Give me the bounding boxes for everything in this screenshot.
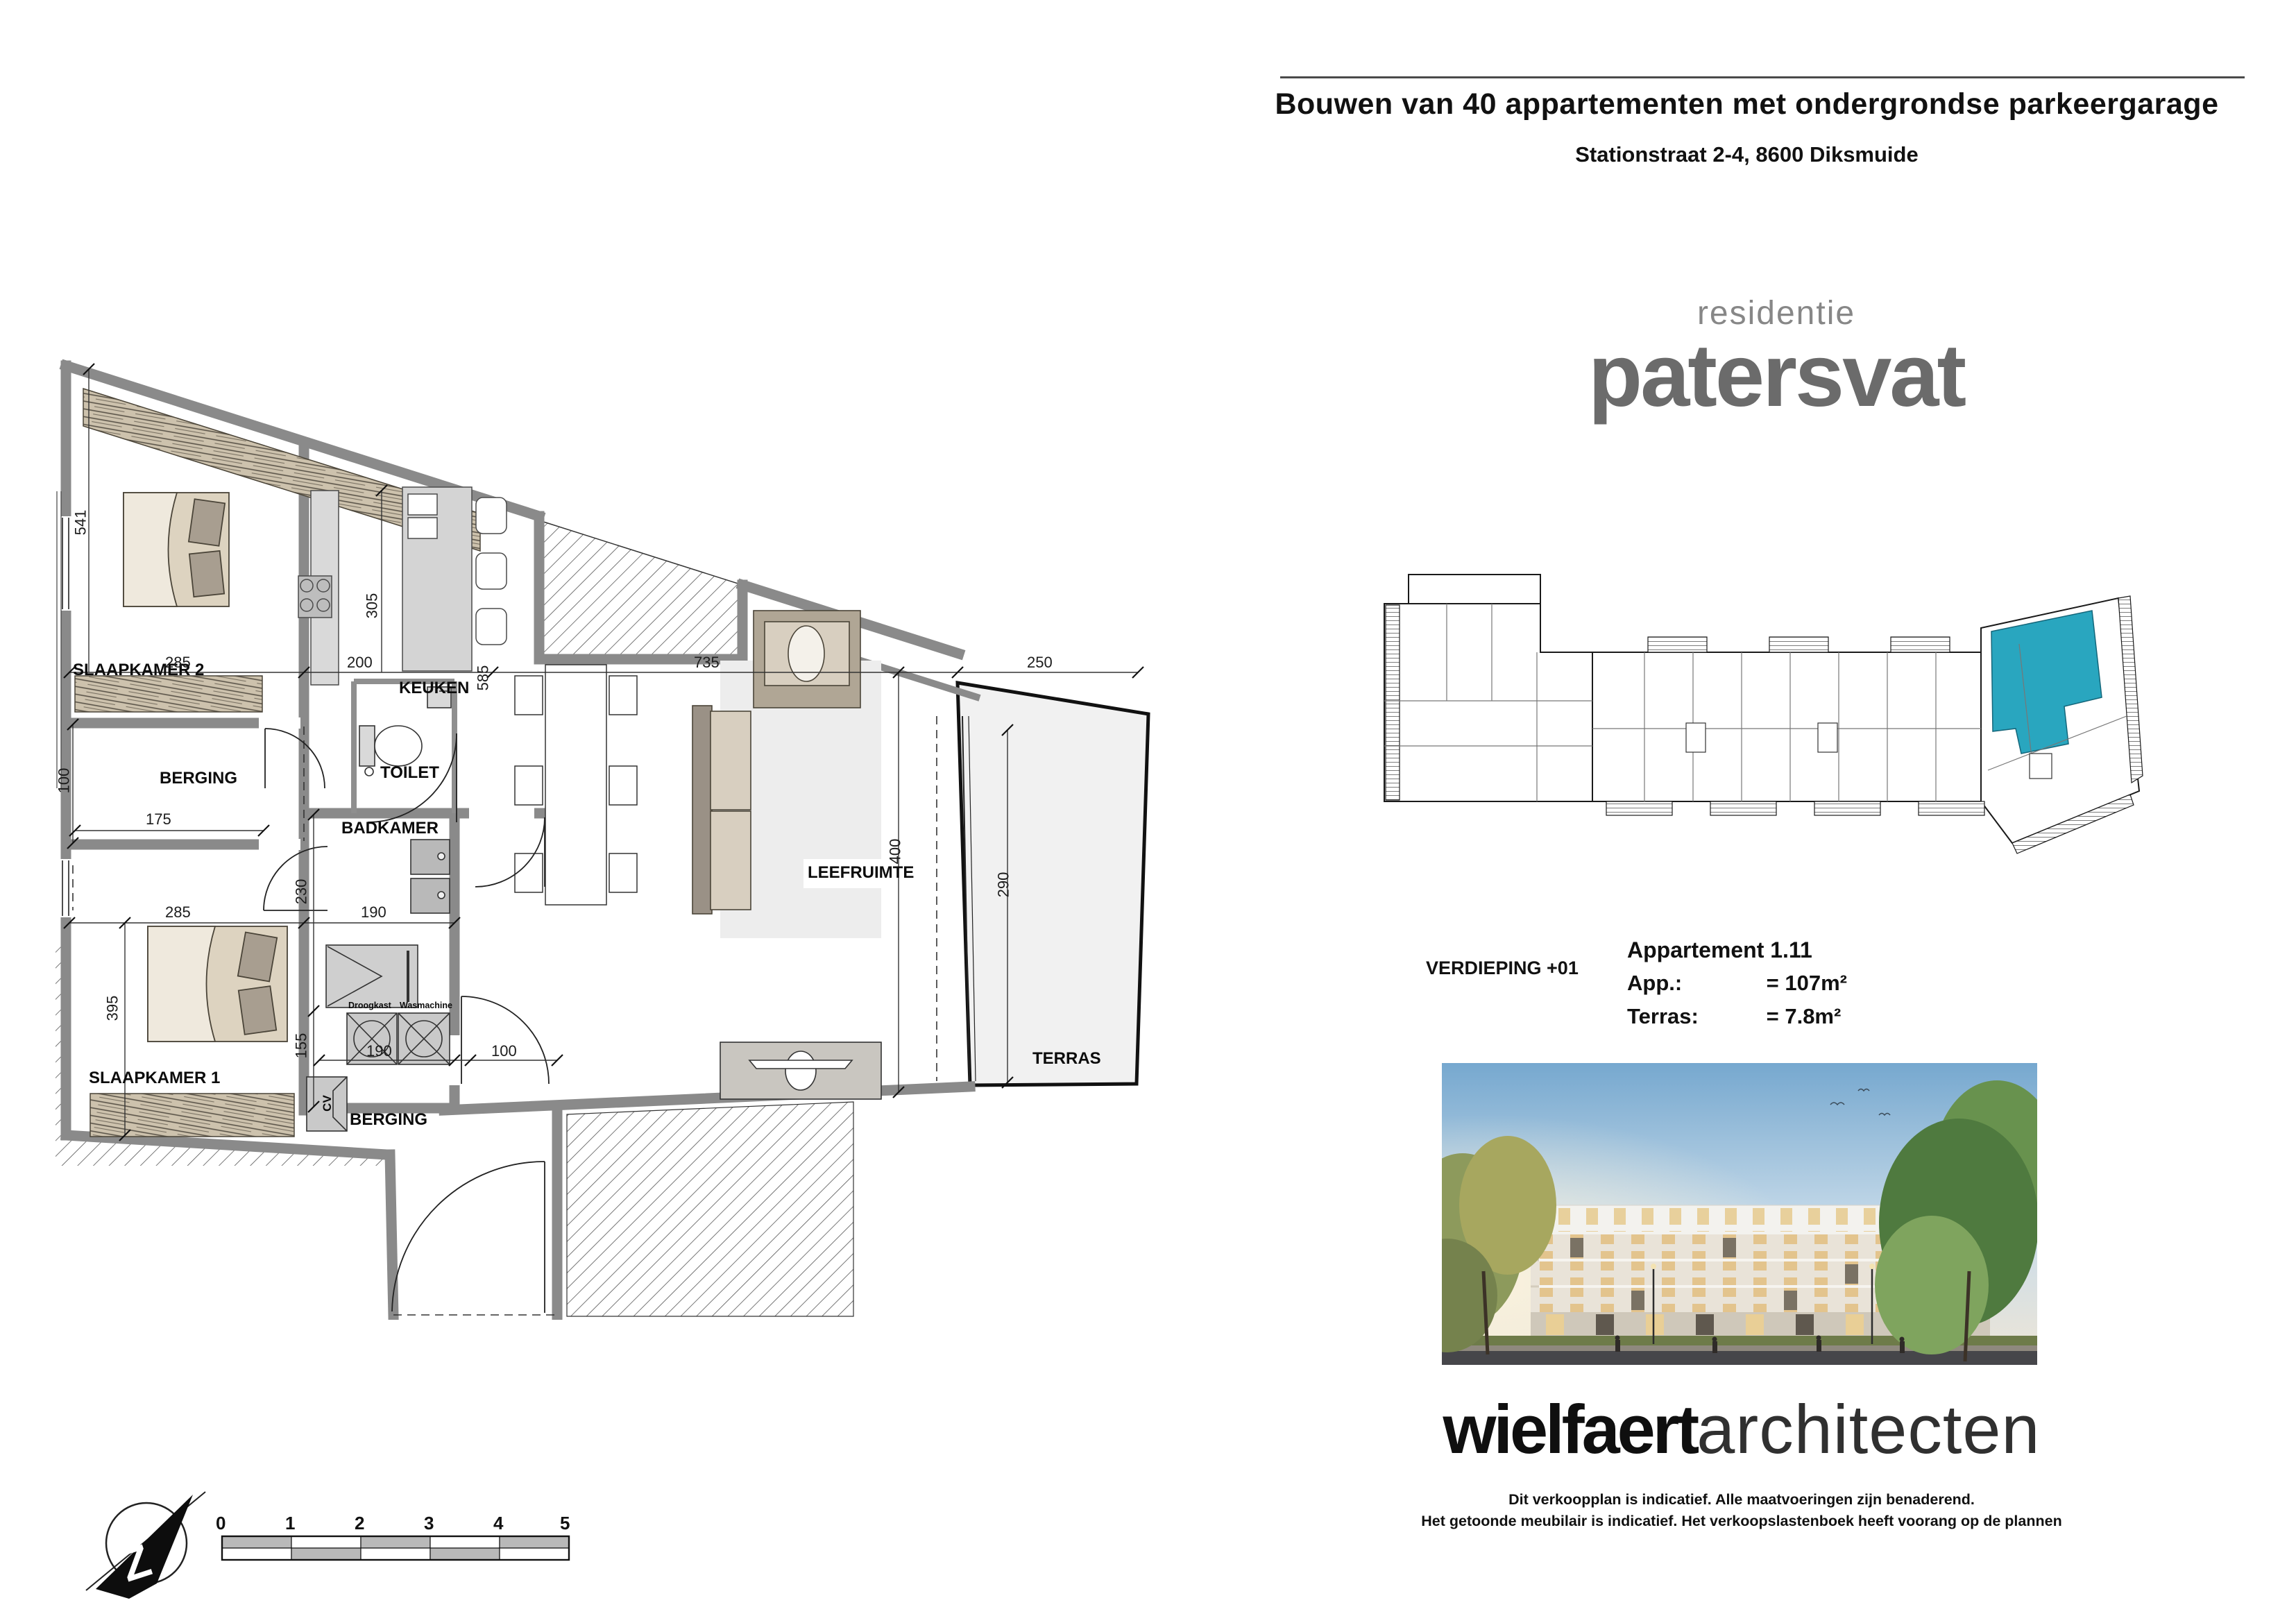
room-label-terras: TERRAS	[1032, 1049, 1101, 1069]
dim-155: 155	[292, 1033, 310, 1059]
dim-285-top: 285	[165, 654, 191, 672]
page-address: Stationstraat 2-4, 8600 Diksmuide	[1245, 142, 2248, 167]
scale-label-4: 4	[493, 1513, 503, 1534]
disclaimer-line-2: Het getoonde meubilair is indicatief. He…	[1315, 1511, 2168, 1532]
architect-logo: wielfaertarchitecten	[1315, 1395, 2168, 1463]
room-label-slaapkamer1: SLAAPKAMER 1	[89, 1069, 220, 1088]
dim-250: 250	[1027, 654, 1053, 672]
apartment-area-value: = 107m²	[1767, 971, 1847, 995]
dim-305: 305	[363, 593, 381, 619]
scale-label-2: 2	[355, 1513, 364, 1534]
building-rendering	[1442, 1063, 2037, 1365]
appliance-label-wasmachine: Wasmachine	[400, 1001, 452, 1010]
header: Bouwen van 40 appartementen met ondergro…	[1245, 87, 2248, 167]
dim-190-berging: 190	[366, 1042, 392, 1060]
room-label-leefruimte: LEEFRUIMTE	[808, 863, 914, 883]
header-rule	[1280, 76, 2245, 78]
apartment-info: Appartement 1.11 App.: = 107m² Terras: =…	[1627, 933, 1847, 1033]
terrace-area-label: Terras:	[1627, 1000, 1760, 1033]
floor-plan-labels: SLAAPKAMER 2 BERGING TOILET BADKAMER SLA…	[56, 355, 1155, 1320]
disclaimer-line-1: Dit verkoopplan is indicatief. Alle maat…	[1315, 1489, 2168, 1511]
dim-735: 735	[694, 654, 720, 672]
dim-100-left: 100	[55, 768, 73, 794]
room-label-badkamer: BADKAMER	[341, 819, 439, 838]
dim-175: 175	[146, 810, 171, 829]
north-arrow-compass: Z	[75, 1479, 210, 1608]
residence-logo-name: patersvat	[1485, 332, 2068, 420]
architect-logo-bold: wielfaert	[1443, 1391, 1697, 1468]
scale-bar: 0 1 2 3 4 5	[221, 1514, 572, 1563]
terrace-area-row: Terras: = 7.8m²	[1627, 1000, 1847, 1033]
apartment-area-row: App.: = 107m²	[1627, 967, 1847, 1000]
dim-395: 395	[103, 996, 121, 1021]
room-label-toilet: TOILET	[380, 763, 439, 783]
apartment-area-label: App.:	[1627, 967, 1760, 1000]
room-label-keuken: KEUKEN	[399, 679, 469, 698]
disclaimer: Dit verkoopplan is indicatief. Alle maat…	[1315, 1489, 2168, 1532]
overview-plan	[1370, 562, 2144, 862]
scale-label-3: 3	[424, 1513, 434, 1534]
page-title: Bouwen van 40 appartementen met ondergro…	[1245, 87, 2248, 121]
residence-logo: residentie patersvat	[1485, 297, 2068, 420]
scale-label-5: 5	[560, 1513, 570, 1534]
dim-400: 400	[886, 839, 904, 865]
dim-230: 230	[292, 879, 310, 905]
room-label-berging1: BERGING	[160, 769, 237, 788]
dim-200: 200	[347, 654, 373, 672]
dim-285-bottom: 285	[165, 903, 191, 921]
dim-585: 585	[474, 665, 492, 691]
architect-logo-light: architecten	[1697, 1391, 2040, 1468]
overview-caption: VERDIEPING +01	[1426, 958, 1579, 979]
scale-bar-graphic	[221, 1535, 570, 1561]
residence-logo-top: residentie	[1485, 297, 2068, 330]
appliance-label-cv: CV	[321, 1095, 334, 1112]
appliance-label-droogkast: Droogkast	[348, 1001, 391, 1010]
scale-label-0: 0	[216, 1513, 226, 1534]
terrace-area-value: = 7.8m²	[1767, 1004, 1842, 1028]
apartment-name: Appartement 1.11	[1627, 933, 1847, 967]
room-label-berging2: BERGING	[350, 1110, 427, 1130]
scale-label-1: 1	[285, 1513, 295, 1534]
dim-290: 290	[994, 872, 1012, 898]
dim-541: 541	[71, 510, 90, 536]
dim-190-badkamer: 190	[361, 903, 386, 921]
dim-100-door: 100	[491, 1042, 517, 1060]
